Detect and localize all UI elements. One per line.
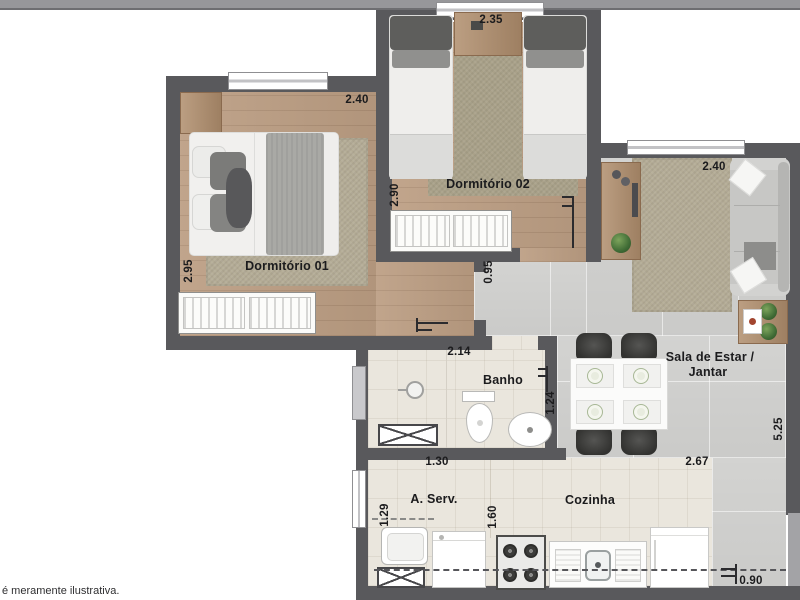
kitchen-sink-counter (549, 541, 647, 588)
bed-pillow-dark (524, 16, 586, 50)
tv-rack (601, 162, 641, 260)
dining-chair (576, 428, 612, 455)
cabinet-dorm01 (180, 92, 222, 134)
sofa-cushion-line (734, 205, 780, 206)
sink-bowl (585, 550, 611, 581)
tray-item (749, 318, 756, 325)
plate-icon (633, 368, 649, 384)
sofa (730, 158, 790, 296)
tray (743, 309, 762, 334)
dim-marker (538, 368, 547, 370)
tv-panel (632, 183, 638, 217)
upper-wall-strip (0, 0, 800, 10)
disclaimer-text: é meramente ilustrativa. (2, 585, 119, 597)
sink-basin (508, 412, 552, 447)
dim-marker (572, 196, 574, 248)
laundry-tub (381, 527, 428, 565)
bed-lower-sheet (524, 134, 586, 179)
label-cozinha: Cozinha (565, 493, 615, 507)
decor-item (612, 170, 621, 179)
dim-marker (562, 196, 574, 198)
label-banho: Banho (483, 373, 523, 387)
pillow-accent (226, 168, 252, 228)
dim-marker (538, 375, 547, 377)
window-dorm01 (228, 72, 328, 90)
closet-dorm01 (178, 292, 316, 334)
stove (496, 535, 546, 590)
fridge-handle (654, 540, 656, 570)
duct-banho (352, 366, 366, 420)
floor-banho-door-patch (492, 336, 538, 350)
fridge-top-line (651, 535, 708, 536)
bed-pillow-gray (392, 50, 450, 68)
washing-machine (432, 531, 486, 588)
dim-marker (735, 564, 737, 584)
single-bed-right (524, 16, 586, 178)
dim-marker (721, 575, 736, 577)
dim-aserv-width: 1.30 (425, 456, 448, 468)
plant-icon (760, 303, 777, 320)
dim-dorm02-depth: 2.90 (389, 183, 401, 206)
dim-marker (562, 205, 574, 207)
closet-section (453, 215, 508, 247)
wardrobe-dorm02 (390, 210, 512, 252)
bed-lower-sheet (390, 134, 452, 179)
washer-panel (433, 540, 485, 541)
window-servico (352, 470, 366, 528)
wall-bottom (356, 586, 800, 600)
dim-marker (721, 568, 736, 570)
wall-banho-top-left (356, 336, 492, 350)
shower-arm (398, 389, 407, 391)
closet-section (395, 215, 450, 247)
floor-dorm02-door-patch (520, 248, 586, 262)
dim-dorm02-width: 2.35 (479, 14, 502, 26)
rug-sala (632, 158, 732, 312)
plant-icon (760, 323, 777, 340)
drain-board (555, 549, 581, 582)
plant-icon (611, 233, 631, 253)
dining-table (570, 358, 668, 430)
burner-icon (524, 544, 538, 558)
dim-banho-depth: 1.24 (545, 391, 557, 414)
rug-runner-dorm02 (454, 56, 522, 178)
plate-icon (633, 404, 649, 420)
window-sala (627, 140, 745, 155)
bed-pillow-dark (390, 16, 452, 50)
tub-basin (387, 533, 424, 561)
floor-dormitorio-01-ext (376, 262, 474, 336)
bed-pillow-gray (526, 50, 584, 68)
dim-marker (418, 329, 432, 331)
bed-center-fold (254, 133, 255, 255)
dim-dorm01-width: 2.40 (345, 94, 368, 106)
dim-sala-depth: 5.25 (773, 417, 785, 440)
bed-foot-sheet (324, 133, 338, 255)
washer-knob (439, 535, 444, 540)
shower-head-icon (406, 381, 424, 399)
label-aserv: A. Serv. (410, 492, 457, 506)
toilet-drain (477, 420, 483, 426)
single-bed-left (390, 16, 452, 178)
dim-hall-width: 0.95 (483, 260, 495, 283)
toilet-tank (462, 391, 495, 402)
shaft-box (378, 424, 438, 446)
label-dorm01: Dormitório 01 (245, 259, 329, 273)
label-dorm02: Dormitório 02 (446, 177, 530, 191)
dining-chair (576, 333, 612, 360)
dim-cozinha-door: 0.90 (739, 575, 762, 587)
dim-dorm01-depth: 2.95 (183, 259, 195, 282)
sofa-backrest (778, 162, 789, 292)
plate-icon (587, 404, 603, 420)
fridge (650, 527, 709, 588)
dim-cozinha-width: 2.67 (685, 456, 708, 468)
label-sala-line2: Jantar (689, 365, 728, 379)
label-sala-line1: Sala de Estar / (666, 350, 754, 364)
burner-icon (503, 544, 517, 558)
dining-chair (621, 428, 657, 455)
bed-blanket (266, 133, 324, 255)
plate-icon (587, 368, 603, 384)
faucet-icon (595, 562, 601, 568)
decor-item (621, 177, 630, 186)
closet-section (249, 297, 311, 329)
drain-board (615, 549, 641, 582)
dim-cozinha-depth: 1.60 (487, 505, 499, 528)
dim-marker (418, 322, 448, 324)
dim-sala-width: 2.40 (702, 161, 725, 173)
dim-aserv-depth: 1.29 (379, 503, 391, 526)
floor-plan: 2.40 2.95 Dormitório 01 2.35 2.90 Dormit… (0, 0, 800, 600)
wall-dorm02-right (586, 10, 601, 262)
faucet-icon (527, 427, 533, 433)
dining-chair (621, 333, 657, 360)
wall-kitchen-top (356, 448, 566, 460)
closet-section (183, 297, 245, 329)
shower-divider (446, 350, 447, 448)
terrace-door (788, 513, 800, 587)
dim-banho-width: 2.14 (447, 346, 470, 358)
